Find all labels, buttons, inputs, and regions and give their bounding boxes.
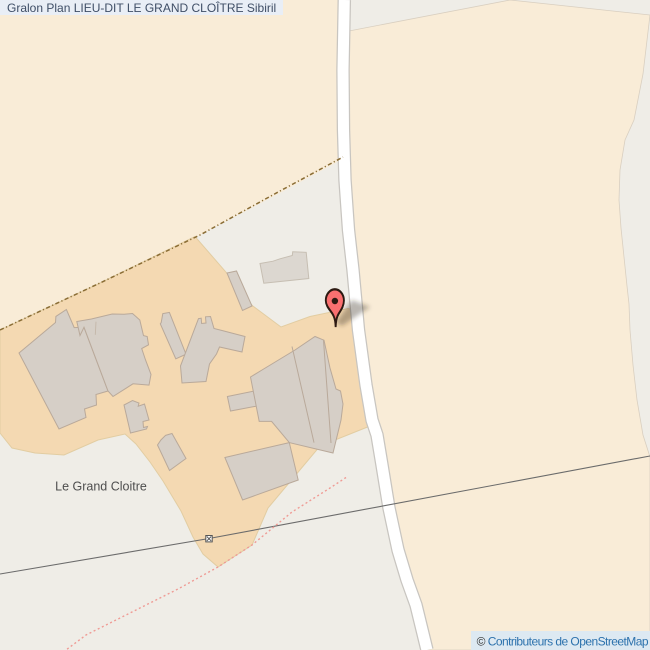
- svg-text:© Contributeurs de OpenStreetM: © Contributeurs de OpenStreetMap: [477, 635, 649, 649]
- svg-text:Gralon Plan LIEU-DIT LE GRAND: Gralon Plan LIEU-DIT LE GRAND CLOÎTRE Si…: [7, 0, 276, 15]
- svg-text:Le Grand Cloitre: Le Grand Cloitre: [55, 480, 147, 494]
